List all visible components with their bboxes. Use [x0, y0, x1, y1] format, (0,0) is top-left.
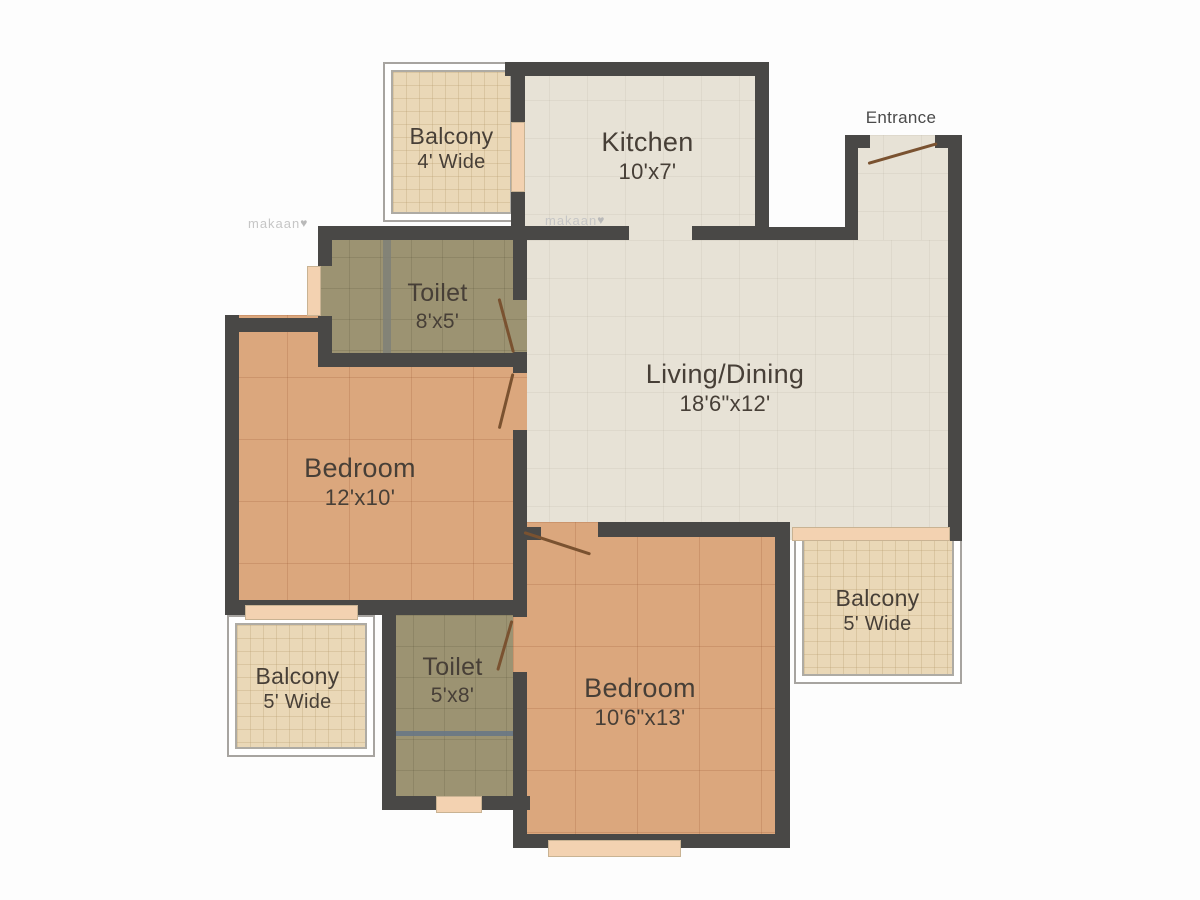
bedroom-left-window [245, 605, 358, 620]
wall-segment [511, 226, 629, 240]
balcony-top-left-label: Balcony4' Wide [383, 122, 520, 174]
watermark: makaan♥ [248, 216, 308, 231]
wall-segment [505, 62, 769, 76]
kitchen-label: Kitchen10'x7' [540, 126, 755, 186]
wall-segment [598, 522, 790, 537]
watermark: makaan♥ [545, 213, 605, 228]
toilet-lower-partition [396, 731, 513, 736]
wall-segment [225, 318, 332, 332]
heart-icon: ♥ [597, 213, 605, 227]
toilet-lower-window [436, 796, 482, 813]
balcony-right-label: Balcony5' Wide [805, 584, 950, 636]
wall-segment [511, 62, 525, 122]
wall-segment [318, 226, 332, 266]
entrance-label: Entrance [840, 108, 962, 128]
toilet-lower-label: Toilet5'x8' [390, 652, 515, 708]
wall-segment [755, 62, 769, 240]
living-dining-label: Living/Dining18'6"x12' [570, 358, 880, 418]
bedroom-bottom-window [548, 840, 681, 857]
heart-icon: ♥ [300, 216, 308, 230]
toilet-upper-label: Toilet8'x5' [355, 278, 520, 334]
wall-segment [692, 226, 769, 240]
wall-segment [845, 135, 858, 240]
wall-segment [225, 315, 239, 615]
toilet-upper-window [307, 266, 321, 316]
bedroom-bottom-label: Bedroom10'6"x13' [530, 672, 750, 732]
wall-segment [513, 430, 527, 617]
balcony-bottom-left-label: Balcony5' Wide [230, 662, 365, 714]
balcony-right-slider [792, 527, 950, 541]
wall-segment [382, 615, 396, 810]
wall-segment [948, 135, 962, 541]
wall-segment [775, 522, 790, 848]
wall-segment [845, 135, 870, 148]
toilet-lower-floor [382, 615, 530, 810]
wall-segment [318, 226, 520, 240]
wall-segment [513, 352, 527, 373]
wall-segment [513, 672, 527, 848]
floor-plan: Balcony4' Wide Kitchen10'x7' Toilet8'x5'… [0, 0, 1200, 900]
bedroom-left-label: Bedroom12'x10' [250, 452, 470, 512]
wall-segment [318, 353, 527, 367]
